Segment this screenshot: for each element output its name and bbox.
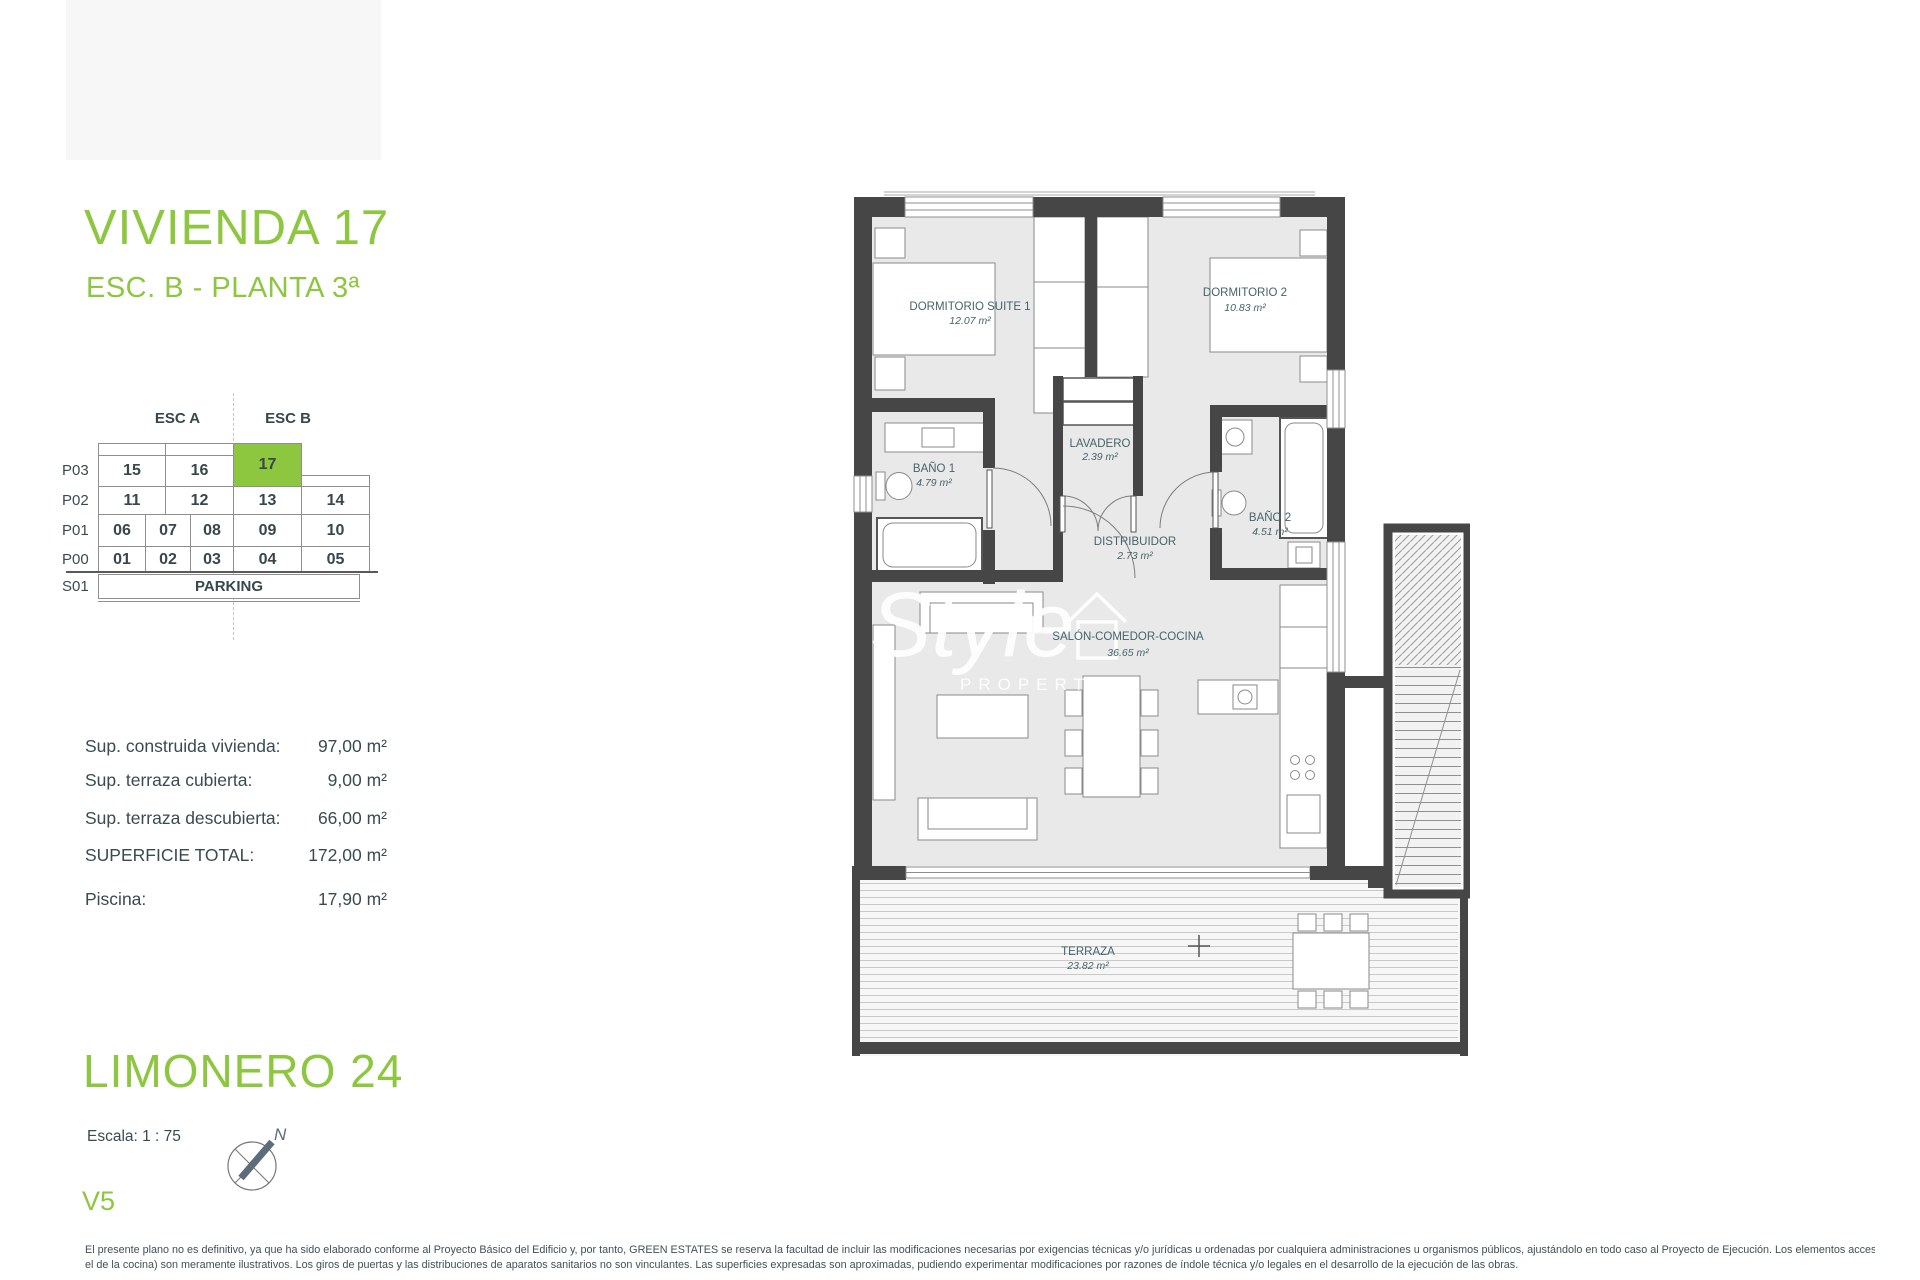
outdoor-table	[1293, 933, 1369, 989]
room-label-bano-2: BAÑO 2	[1249, 511, 1291, 524]
logo-placeholder	[66, 0, 381, 160]
hob-burner	[1291, 756, 1300, 765]
surface-label: SUPERFICIE TOTAL:	[85, 845, 254, 866]
unit-cell-12[interactable]: 12	[165, 486, 234, 515]
chair	[1141, 768, 1158, 794]
room-label-lavadero: LAVADERO	[1070, 438, 1131, 450]
toilet-bowl	[1222, 491, 1246, 515]
chair	[1065, 768, 1082, 794]
unit-cell-14[interactable]: 14	[301, 486, 370, 515]
compass-icon: N	[204, 1116, 304, 1216]
floor-label-s01: S01	[62, 578, 102, 595]
unit-cell-07[interactable]: 07	[145, 514, 191, 547]
outdoor-chair	[1298, 914, 1316, 931]
room-area-salon: 36.65 m²	[1107, 647, 1149, 659]
surface-value: 17,90 m²	[318, 889, 387, 910]
sofa-seat	[928, 798, 1027, 829]
ground-line	[66, 571, 378, 573]
unit-cell-04[interactable]: 04	[233, 546, 302, 573]
surface-row-total: SUPERFICIE TOTAL: 172,00 m²	[85, 845, 387, 866]
legal-disclaimer: El presente plano no es definitivo, ya q…	[85, 1243, 1875, 1272]
plan-sheet: VIVIENDA 17 ESC. B - PLANTA 3ª ESC A ESC…	[0, 0, 1920, 1280]
surface-label: Sup. construida vivienda:	[85, 736, 281, 757]
unit-cell-02[interactable]: 02	[145, 546, 191, 573]
room-area-bano-2: 4.51 m²	[1252, 526, 1288, 538]
compass-north-label: N	[274, 1125, 287, 1144]
parking-underline	[98, 601, 360, 602]
room-label-terraza: TERRAZA	[1061, 946, 1115, 958]
toilet-bowl	[886, 473, 912, 500]
page-subtitle: ESC. B - PLANTA 3ª	[86, 272, 360, 305]
room-area-distribuidor: 2.73 m²	[1116, 550, 1153, 562]
outdoor-chair	[1350, 991, 1368, 1008]
dryer	[1063, 402, 1135, 425]
dining-table	[1083, 676, 1140, 797]
room-label-salon: SALÓN-COMEDOR-COCINA	[1052, 630, 1204, 643]
room-area-dormitorio-2: 10.83 m²	[1224, 302, 1266, 314]
hob-burner	[1306, 756, 1315, 765]
surface-label: Sup. terraza descubierta:	[85, 808, 281, 829]
surface-value: 9,00 m²	[328, 770, 387, 791]
floor-label-p02: P02	[62, 492, 102, 509]
unit-cell-13[interactable]: 13	[233, 486, 302, 515]
nightstand	[875, 357, 905, 390]
oven	[1287, 795, 1320, 833]
unit-cell-09[interactable]: 09	[233, 514, 302, 547]
floor-label-p00: P00	[62, 551, 102, 568]
surface-value: 172,00 m²	[308, 845, 387, 866]
staircase	[1345, 528, 1468, 894]
hob-burner	[1306, 771, 1315, 780]
outdoor-chair	[1298, 991, 1316, 1008]
room-area-lavadero: 2.39 m²	[1081, 451, 1118, 463]
nightstand	[1300, 356, 1327, 382]
room-area-dormitorio-suite-1: 12.07 m²	[949, 315, 991, 327]
sink	[1226, 428, 1244, 446]
unit-cell-15[interactable]: 15	[98, 455, 166, 487]
toilet-tank	[876, 472, 885, 500]
unit-cell-08[interactable]: 08	[190, 514, 234, 547]
wardrobe	[1097, 217, 1148, 377]
project-name: LIMONERO 24	[83, 1044, 403, 1098]
surface-label: Sup. terraza cubierta:	[85, 770, 252, 791]
surface-value: 97,00 m²	[318, 736, 387, 757]
washer	[1063, 378, 1135, 401]
terrace-deck	[852, 866, 1468, 1056]
outdoor-chair	[1350, 914, 1368, 931]
room-label-dormitorio-2: DORMITORIO 2	[1203, 287, 1287, 299]
floor-label-p01: P01	[62, 522, 102, 539]
disclaimer-line-2: el de la cocina) son meramente ilustrati…	[85, 1258, 1875, 1273]
island-sink-bowl	[1238, 690, 1252, 704]
room-label-dormitorio-suite-1: DORMITORIO SUITE 1	[909, 301, 1030, 313]
surface-row: Sup. terraza cubierta: 9,00 m²	[85, 770, 387, 791]
room-area-terraza: 23.82 m²	[1066, 960, 1109, 972]
disclaimer-line-1: El presente plano no es definitivo, ya q…	[85, 1243, 1875, 1258]
hob-burner	[1291, 771, 1300, 780]
unit-cell-11[interactable]: 11	[98, 486, 166, 515]
unit-cell-03[interactable]: 03	[190, 546, 234, 573]
version-label: V5	[82, 1186, 115, 1217]
surface-row: Sup. construida vivienda: 97,00 m²	[85, 736, 387, 757]
coffee-table	[937, 695, 1028, 738]
surface-value: 66,00 m²	[318, 808, 387, 829]
surface-row-pool: Piscina: 17,90 m²	[85, 889, 387, 910]
parking-cell[interactable]: PARKING	[98, 574, 360, 599]
unit-cell-01[interactable]: 01	[98, 546, 146, 573]
room-area-bano-1: 4.79 m²	[916, 477, 952, 489]
room-label-distribuidor: DISTRIBUIDOR	[1094, 536, 1176, 548]
room-label-bano-1: BAÑO 1	[913, 462, 955, 475]
scale-label: Escala: 1 : 75	[87, 1128, 181, 1146]
watermark-style: Style	[870, 574, 1075, 676]
surface-row: Sup. terraza descubierta: 66,00 m²	[85, 808, 387, 829]
chair	[1141, 730, 1158, 756]
floor-label-p03: P03	[62, 462, 102, 479]
nightstand	[875, 228, 905, 258]
unit-cell-10[interactable]: 10	[301, 514, 370, 547]
unit-cell-05[interactable]: 05	[301, 546, 370, 573]
floor-plan: Style PROPERTIES DORMITORIO SUITE 1 12.0…	[850, 190, 1470, 1060]
watermark-properties: PROPERTIES	[960, 675, 1139, 694]
bathtub-inner	[883, 523, 976, 567]
washbasin	[1296, 547, 1312, 563]
surface-label: Piscina:	[85, 889, 146, 910]
sink	[922, 428, 954, 447]
outdoor-chair	[1324, 914, 1342, 931]
chair	[1065, 730, 1082, 756]
unit-cell-17-selected[interactable]: 17	[233, 443, 302, 487]
outdoor-chair	[1324, 991, 1342, 1008]
nightstand	[1300, 230, 1327, 256]
page-title: VIVIENDA 17	[84, 200, 389, 256]
unit-cell-16[interactable]: 16	[165, 455, 234, 487]
column-header-esc-b: ESC B	[220, 410, 356, 430]
chair	[1141, 690, 1158, 716]
unit-cell-06[interactable]: 06	[98, 514, 146, 547]
